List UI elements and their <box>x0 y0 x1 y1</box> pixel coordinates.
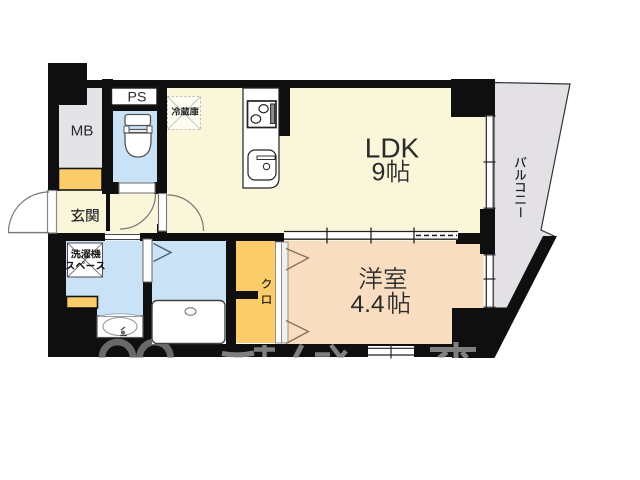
svg-text:9: 9 <box>372 159 386 187</box>
svg-text:PS: PS <box>128 90 147 106</box>
svg-text:MB: MB <box>71 122 94 139</box>
svg-text:4.4: 4.4 <box>351 291 385 318</box>
